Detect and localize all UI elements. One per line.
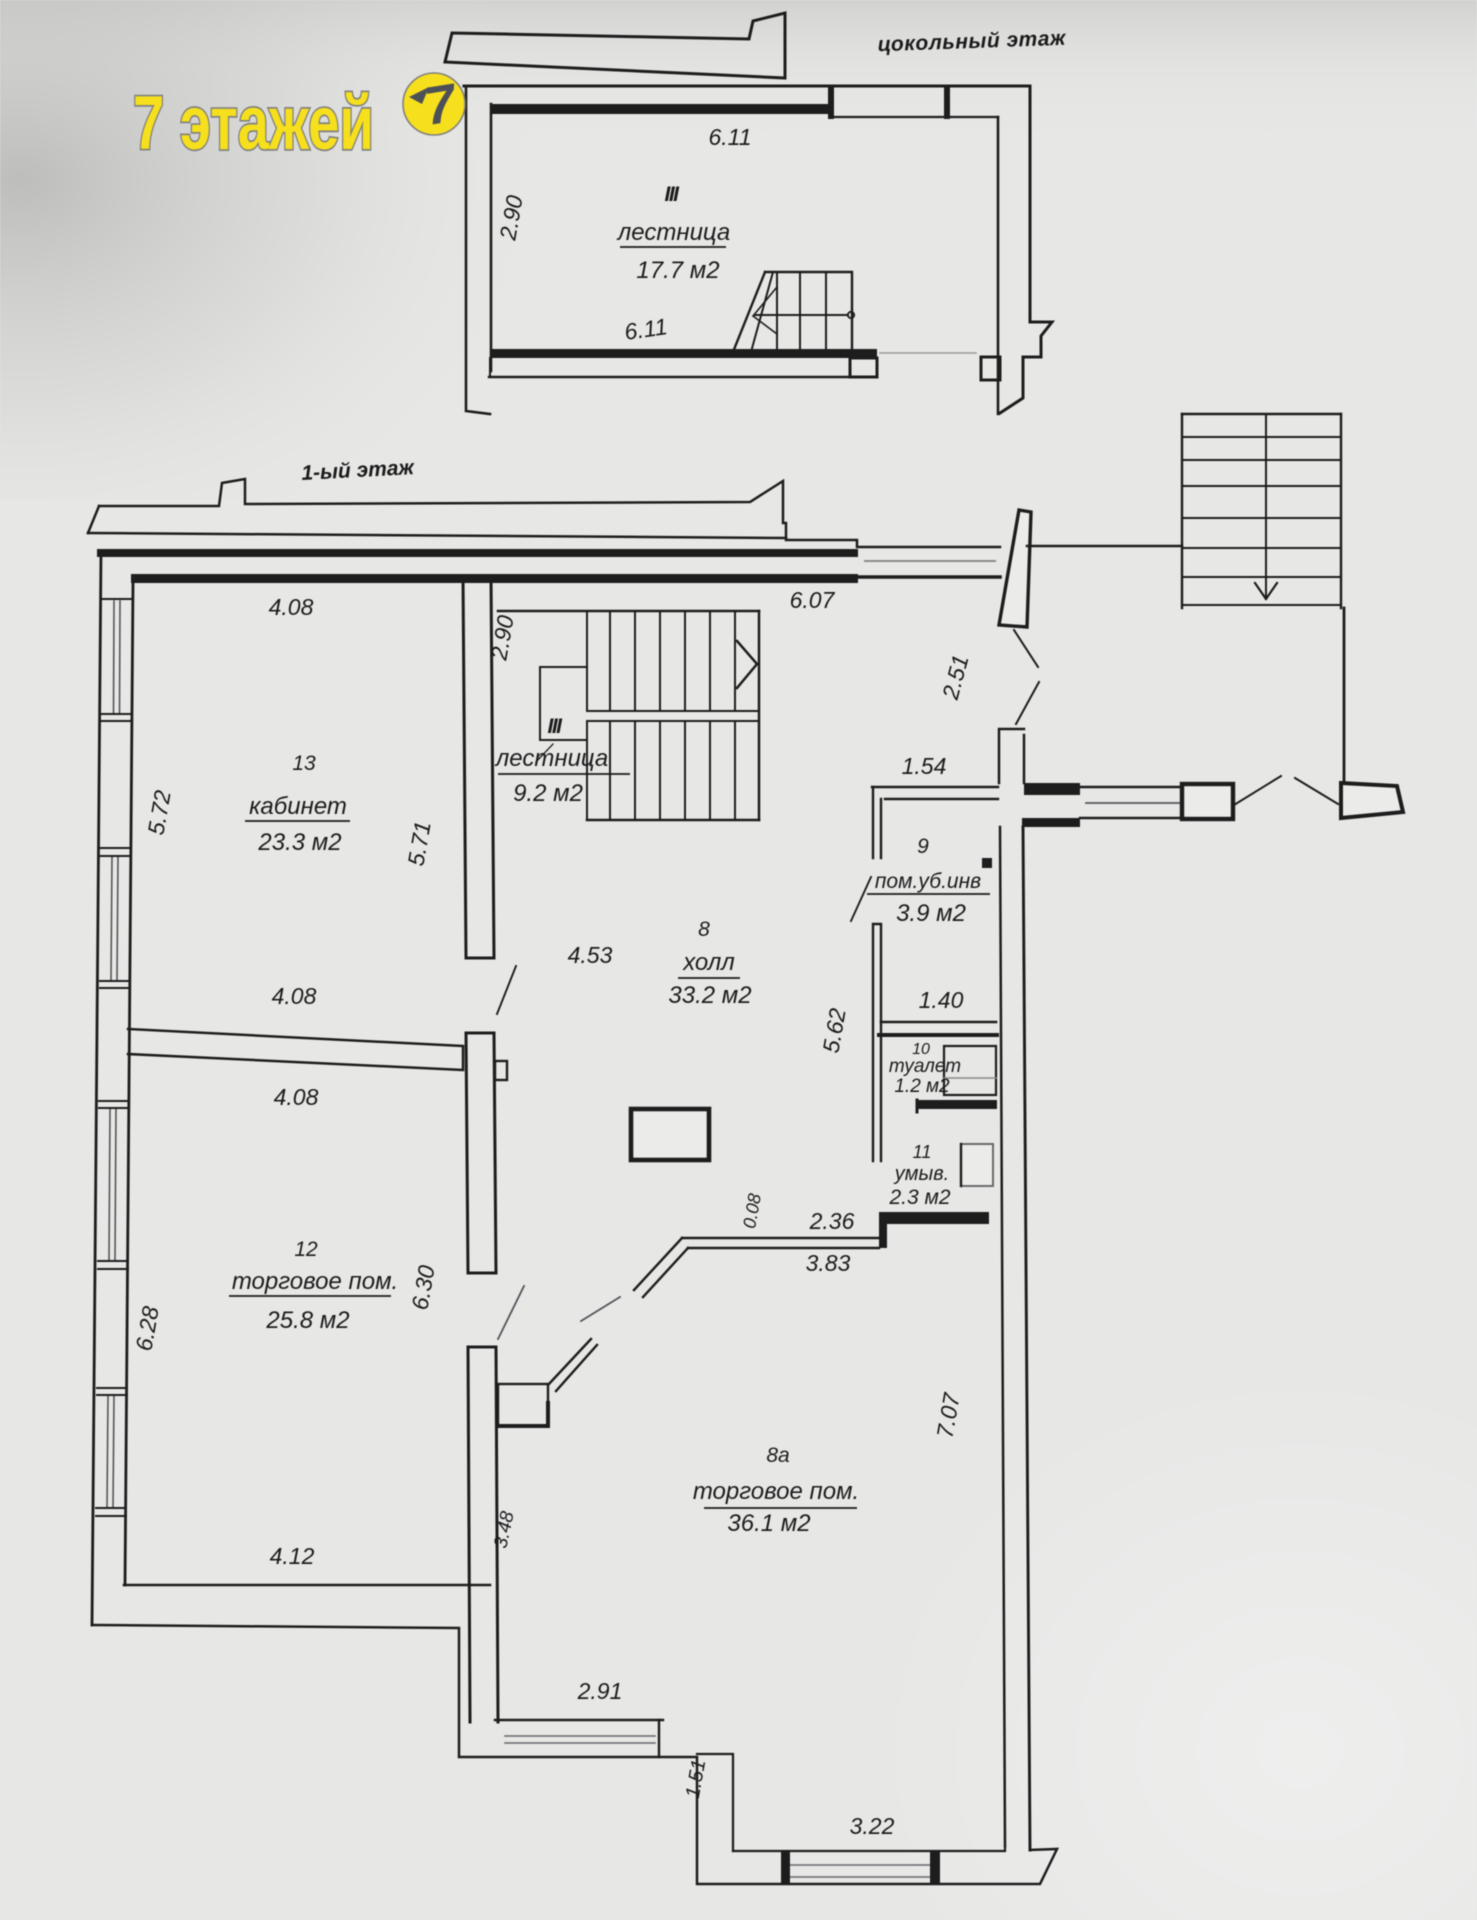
svg-text:7 этажей: 7 этажей <box>133 81 374 166</box>
svg-text:25.8 м2: 25.8 м2 <box>265 1307 349 1334</box>
svg-text:2.3 м2: 2.3 м2 <box>888 1186 950 1209</box>
svg-text:2.36: 2.36 <box>809 1208 855 1234</box>
svg-text:лестница: лестница <box>494 745 609 772</box>
svg-text:лестница: лестница <box>616 219 731 246</box>
svg-text:9: 9 <box>917 835 929 858</box>
svg-text:4.12: 4.12 <box>270 1543 315 1569</box>
svg-text:2.91: 2.91 <box>577 1678 623 1704</box>
svg-text:6.07: 6.07 <box>790 587 836 613</box>
svg-text:1.40: 1.40 <box>919 987 964 1013</box>
svg-text:6.11: 6.11 <box>708 124 751 150</box>
svg-text:13: 13 <box>292 752 316 775</box>
svg-text:12: 12 <box>294 1238 318 1261</box>
svg-text:11: 11 <box>913 1142 932 1162</box>
svg-text:23.3 м2: 23.3 м2 <box>257 829 341 856</box>
svg-text:туалет: туалет <box>889 1056 961 1077</box>
svg-text:9.2 м2: 9.2 м2 <box>513 780 583 807</box>
svg-text:3.83: 3.83 <box>806 1250 851 1276</box>
svg-text:холл: холл <box>682 949 735 976</box>
svg-text:пом.уб.инв: пом.уб.инв <box>875 870 981 893</box>
svg-text:умыв.: умыв. <box>893 1163 949 1185</box>
svg-text:3.22: 3.22 <box>850 1813 895 1839</box>
svg-text:8а: 8а <box>766 1444 789 1467</box>
svg-text:4.08: 4.08 <box>272 983 317 1009</box>
svg-text:торговое пом.: торговое пом. <box>693 1478 859 1505</box>
svg-text:1.54: 1.54 <box>902 753 947 779</box>
svg-text:3.9 м2: 3.9 м2 <box>896 900 966 927</box>
svg-text:кабинет: кабинет <box>249 793 347 820</box>
svg-text:17.7 м2: 17.7 м2 <box>636 257 719 284</box>
svg-text:33.2 м2: 33.2 м2 <box>668 982 751 1009</box>
svg-text:торговое пом.: торговое пом. <box>232 1268 398 1295</box>
svg-text:36.1 м2: 36.1 м2 <box>727 1510 810 1537</box>
svg-text:4.53: 4.53 <box>568 942 613 968</box>
svg-text:8: 8 <box>698 918 710 941</box>
svg-text:4.08: 4.08 <box>269 594 314 620</box>
svg-text:1.2 м2: 1.2 м2 <box>894 1076 950 1097</box>
svg-text:4.08: 4.08 <box>274 1084 319 1110</box>
